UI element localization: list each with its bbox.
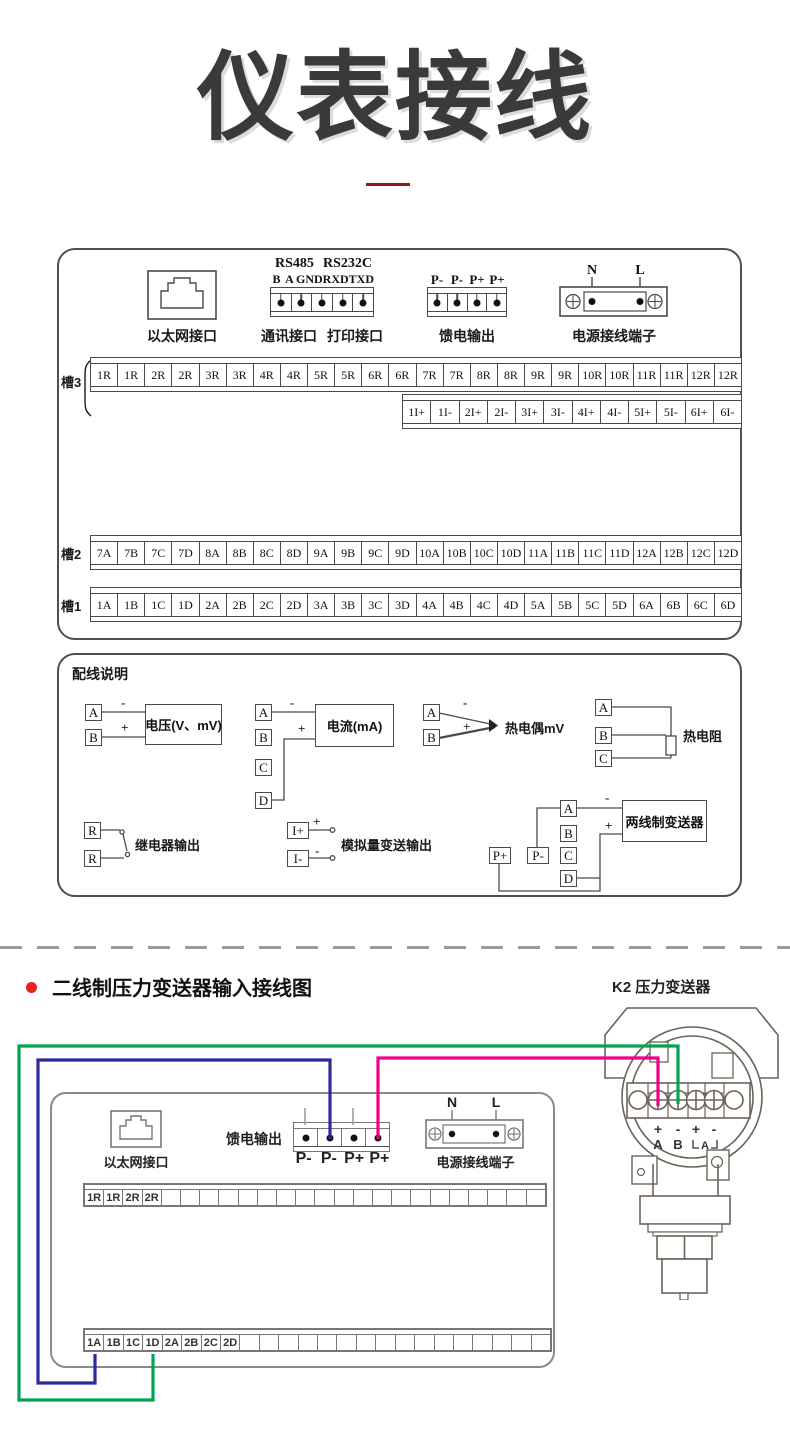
terminal-cell: 4I- xyxy=(601,401,629,423)
power-l-label: L xyxy=(635,263,644,278)
terminal-cell: 8D xyxy=(281,542,308,564)
terminal-dot-cell xyxy=(294,1129,318,1146)
terminal-cell: 9A xyxy=(308,542,335,564)
terminal-cell: 8A xyxy=(200,542,227,564)
terminal-cell: 11B xyxy=(552,542,579,564)
terminal-cell xyxy=(299,1335,318,1350)
terminal-cell xyxy=(431,1190,450,1205)
terminal-cell: 2B xyxy=(227,594,254,616)
pin-label: P- xyxy=(447,272,467,288)
ethernet-label: 以太网接口 xyxy=(142,326,222,346)
feed-pin-labels: P-P-P+P+ xyxy=(427,272,507,288)
terminal-cell: 10A xyxy=(417,542,444,564)
terminal-cell: 2R xyxy=(143,1190,162,1205)
power-terminal-block: N L xyxy=(425,1093,525,1151)
terminal-cell: 7R xyxy=(444,364,471,386)
terminal-c: C xyxy=(595,750,612,767)
terminal-cell: 8B xyxy=(227,542,254,564)
terminal-cell: 2D xyxy=(281,594,308,616)
terminal-a: A xyxy=(85,704,102,721)
terminal-cell: 6R xyxy=(362,364,389,386)
wiring-lines xyxy=(59,655,744,899)
terminal-cell: 11R xyxy=(634,364,661,386)
terminal-dot-cell xyxy=(342,1129,366,1146)
terminal-cell: 7C xyxy=(145,542,172,564)
terminal-cell: 5D xyxy=(606,594,633,616)
terminal-cell xyxy=(239,1190,258,1205)
terminal-cell: 11R xyxy=(661,364,688,386)
minus-sign: - xyxy=(315,843,319,859)
power-n-label: N xyxy=(587,263,597,278)
sign-minus: - xyxy=(712,1121,717,1137)
feed-terminal-strip xyxy=(427,287,507,317)
terminal-cell xyxy=(512,1335,531,1350)
terminal-cell: 6B xyxy=(661,594,688,616)
power-terminal-label: 电源接线端子 xyxy=(428,1152,523,1171)
terminal-cell xyxy=(279,1335,298,1350)
minus-sign: - xyxy=(463,695,467,711)
terminal-cell xyxy=(277,1190,296,1205)
pin-label: RXD xyxy=(323,272,349,287)
terminal-cell: 1B xyxy=(104,1335,123,1350)
terminal-cell: 3D xyxy=(389,594,416,616)
terminal-cell xyxy=(527,1190,545,1205)
terminal-cell xyxy=(318,1335,337,1350)
terminal-cell: 8R xyxy=(498,364,525,386)
terminal-cell xyxy=(415,1335,434,1350)
feed-terminal-strip xyxy=(293,1122,390,1152)
terminal-p-plus: P+ xyxy=(489,847,511,864)
terminal-cell: 6A xyxy=(634,594,661,616)
terminal-cell: 4D xyxy=(498,594,525,616)
pin-label: P- xyxy=(291,1150,316,1168)
terminal-cell: 7D xyxy=(172,542,199,564)
terminal-cell: 1A xyxy=(91,594,118,616)
terminal-cell xyxy=(411,1190,430,1205)
terminal-cell xyxy=(473,1335,492,1350)
pin-label: TXD xyxy=(349,272,374,287)
terminal-cell: 3C xyxy=(362,594,389,616)
terminal-cell: 3I+ xyxy=(516,401,544,423)
main-wiring-panel: 以太网接口 RS485 RS232C BAGNDRXDTXD 通讯接口 打印接口… xyxy=(57,248,742,640)
comm-port-label: 通讯接口 xyxy=(261,326,317,346)
terminal-dot-cell xyxy=(333,294,354,311)
pin-label: P+ xyxy=(487,272,507,288)
plus-sign: + xyxy=(605,818,612,834)
terminal-cell: 5C xyxy=(579,594,606,616)
terminal-c: C xyxy=(560,847,577,864)
minus-sign: - xyxy=(121,695,125,711)
terminal-cell: 2D xyxy=(221,1335,240,1350)
terminal-cell: 1C xyxy=(124,1335,143,1350)
power-terminal-block: N L xyxy=(559,258,669,318)
terminal-cell xyxy=(373,1190,392,1205)
terminal-b: B xyxy=(255,729,272,746)
terminal-a: A xyxy=(595,699,612,716)
terminal-cell: 6I+ xyxy=(686,401,714,423)
terminal-d: D xyxy=(255,792,272,809)
terminal-cell: 6C xyxy=(688,594,715,616)
plus-sign: + xyxy=(298,721,305,737)
comm-dot-cells xyxy=(271,294,373,311)
terminal-cell: 3I- xyxy=(544,401,572,423)
terminal-d: D xyxy=(560,870,577,887)
terminal-b: B xyxy=(595,727,612,744)
minus-sign: - xyxy=(605,790,609,806)
terminal-r1: R xyxy=(84,822,101,839)
terminal-cell: 2B xyxy=(182,1335,201,1350)
terminal-cell: 1R xyxy=(91,364,118,386)
terminal-cell xyxy=(181,1190,200,1205)
terminal-cell: 1I+ xyxy=(403,401,431,423)
pin-label: P- xyxy=(427,272,447,288)
terminal-cell: 12R xyxy=(715,364,741,386)
terminal-cell: 1A xyxy=(85,1335,104,1350)
terminal-cell: 1R xyxy=(118,364,145,386)
terminal-cell: 10R xyxy=(579,364,606,386)
wiring-instructions-panel: 配线说明 A B - + xyxy=(57,653,742,897)
terminal-dot-cell xyxy=(292,294,313,311)
terminal-cell: 4R xyxy=(254,364,281,386)
terminal-i-minus: I- xyxy=(287,850,309,867)
terminal-cell: 1B xyxy=(118,594,145,616)
terminal-cell: 4R xyxy=(281,364,308,386)
terminal-cell: 5I+ xyxy=(629,401,657,423)
terminal-cell: 5A xyxy=(525,594,552,616)
feed-pin-labels: P-P-P+P+ xyxy=(291,1150,392,1168)
terminal-dot-cell xyxy=(468,294,488,311)
comm-pin-labels: BAGNDRXDTXD xyxy=(270,272,374,287)
page: 仪表接线 以太网接口 RS485 RS232C BAGNDRXDTXD 通讯接口 xyxy=(0,0,790,1435)
pin-label: P+ xyxy=(467,272,487,288)
terminal-cell: 7R xyxy=(417,364,444,386)
recorder-terminal-strip-row1: 1R1R2R2R xyxy=(83,1183,547,1207)
rs232c-label: RS232C xyxy=(323,256,372,272)
terminal-cell: 2I+ xyxy=(460,401,488,423)
terminal-cell: 1R xyxy=(104,1190,123,1205)
terminal-cell: 10R xyxy=(606,364,633,386)
terminal-cell: 12R xyxy=(688,364,715,386)
terminal-i-plus: I+ xyxy=(287,822,309,839)
plus-sign: + xyxy=(463,719,470,735)
terminal-cell xyxy=(376,1335,395,1350)
terminal-c: C xyxy=(255,759,272,776)
terminal-dot-cell xyxy=(271,294,292,311)
terminal-cell: 9R xyxy=(552,364,579,386)
strip-band xyxy=(403,423,741,428)
plus-sign: + xyxy=(121,720,128,736)
sign-plus: + xyxy=(654,1121,662,1137)
terminal-cell: 3A xyxy=(308,594,335,616)
power-terminal-label: 电源接线端子 xyxy=(564,326,664,346)
terminal-cell: 12D xyxy=(715,542,741,564)
terminal-cell xyxy=(315,1190,334,1205)
terminal-dot-cell xyxy=(318,1129,342,1146)
slot3-terminal-strip-row1: 1R1R2R2R3R3R4R4R5R5R6R6R7R7R8R8R9R9R10R1… xyxy=(90,357,742,392)
terminal-dot-cell xyxy=(428,294,448,311)
bullet-icon xyxy=(26,982,37,993)
terminal-dot-cell xyxy=(487,294,506,311)
terminal-cell: 6R xyxy=(389,364,416,386)
terminal-cell xyxy=(337,1335,356,1350)
terminal-cell: 2R xyxy=(145,364,172,386)
terminal-cell: 1D xyxy=(172,594,199,616)
terminal-cell xyxy=(240,1335,259,1350)
terminal-cell: 3B xyxy=(335,594,362,616)
terminal-a: A xyxy=(255,704,272,721)
strip-band xyxy=(91,386,741,391)
terminal-a: A xyxy=(423,704,440,721)
voltage-box: 电压(V、mV) xyxy=(145,704,222,745)
feed-output-label: 馈电输出 xyxy=(427,326,507,346)
terminal-cell: 12A xyxy=(634,542,661,564)
slot3-label: 槽3 xyxy=(61,372,81,391)
pin-label: P+ xyxy=(342,1150,367,1168)
terminal-a-label: A xyxy=(653,1137,663,1152)
power-n-label: N xyxy=(447,1094,457,1110)
terminal-cell: 2C xyxy=(254,594,281,616)
slot3-terminal-strip-row2: 1I+1I-2I+2I-3I+3I-4I+4I-5I+5I-6I+6I- xyxy=(402,394,742,429)
pin-label: A xyxy=(283,272,296,287)
terminal-cell xyxy=(200,1190,219,1205)
section-divider xyxy=(0,946,790,949)
terminal-cell: 1D xyxy=(143,1335,162,1350)
terminal-cell: 2I- xyxy=(488,401,516,423)
terminal-cell: 11A xyxy=(525,542,552,564)
terminal-cell xyxy=(450,1190,469,1205)
terminal-cell: 1R xyxy=(85,1190,104,1205)
page-title: 仪表接线 xyxy=(0,18,790,159)
terminal-cell xyxy=(532,1335,550,1350)
ethernet-port-icon xyxy=(147,270,217,320)
slot1-terminal-strip: 1A1B1C1D2A2B2C2D3A3B3C3D4A4B4C4D5A5B5C5D… xyxy=(90,587,742,622)
rs485-label: RS485 xyxy=(275,256,314,272)
terminal-cell xyxy=(335,1190,354,1205)
terminal-cell xyxy=(260,1335,279,1350)
slot2-label: 槽2 xyxy=(61,544,81,563)
ethernet-label: 以太网接口 xyxy=(96,1152,176,1171)
terminal-cell: 1C xyxy=(145,594,172,616)
terminal-cell: 3R xyxy=(200,364,227,386)
terminal-cell xyxy=(507,1190,526,1205)
terminal-cell: 9R xyxy=(525,364,552,386)
terminal-cell xyxy=(435,1335,454,1350)
pin-label: P- xyxy=(316,1150,341,1168)
pin-label: B xyxy=(270,272,283,287)
slot2-terminal-strip: 7A7B7C7D8A8B8C8D9A9B9C9D10A10B10C10D11A1… xyxy=(90,535,742,570)
two-wire-transmitter-box: 两线制变送器 xyxy=(622,800,707,842)
terminal-dot-cell xyxy=(448,294,468,311)
terminal-cell xyxy=(488,1190,507,1205)
ethernet-port-icon xyxy=(110,1110,162,1148)
power-l-label: L xyxy=(492,1094,501,1110)
terminal-cell: 5R xyxy=(335,364,362,386)
terminal-cell xyxy=(258,1190,277,1205)
strip-band xyxy=(271,311,373,316)
terminal-cell xyxy=(162,1190,181,1205)
slot1-label: 槽1 xyxy=(61,596,81,615)
terminal-cell xyxy=(219,1190,238,1205)
terminal-b-label: B xyxy=(673,1137,682,1152)
comm-terminal-strip xyxy=(270,287,374,317)
terminal-cell: 2A xyxy=(200,594,227,616)
terminal-cell: 3R xyxy=(227,364,254,386)
strip-band xyxy=(428,311,506,316)
terminal-cell xyxy=(469,1190,488,1205)
terminal-cell xyxy=(392,1190,411,1205)
terminal-cell xyxy=(493,1335,512,1350)
terminal-cell: 4A xyxy=(417,594,444,616)
sign-minus: - xyxy=(676,1121,681,1137)
terminal-cell: 10D xyxy=(498,542,525,564)
terminal-cell xyxy=(396,1335,415,1350)
terminal-cell: 10C xyxy=(471,542,498,564)
terminal-dot-cell xyxy=(312,294,333,311)
terminal-cell: 2R xyxy=(172,364,199,386)
terminal-cell: 4I+ xyxy=(573,401,601,423)
terminal-cell: 10B xyxy=(444,542,471,564)
terminal-cell: 2A xyxy=(163,1335,182,1350)
terminal-cell xyxy=(357,1335,376,1350)
terminal-cell: 11C xyxy=(579,542,606,564)
sign-plus: + xyxy=(692,1121,700,1137)
terminal-cell: 9D xyxy=(389,542,416,564)
feed-dot-cells xyxy=(428,294,506,311)
terminal-cell: 1I- xyxy=(431,401,459,423)
terminal-b: B xyxy=(423,729,440,746)
terminal-b: B xyxy=(85,729,102,746)
terminal-cell: 11D xyxy=(606,542,633,564)
terminal-cell: 8C xyxy=(254,542,281,564)
terminal-cell: 9B xyxy=(335,542,362,564)
terminal-cell: 4C xyxy=(471,594,498,616)
terminal-cell xyxy=(354,1190,373,1205)
terminal-cell: 7B xyxy=(118,542,145,564)
pin-label: P+ xyxy=(367,1150,392,1168)
terminal-a: A xyxy=(560,800,577,817)
section-title: 二线制压力变送器输入接线图 xyxy=(52,972,312,1001)
feed-dot-cells xyxy=(294,1129,389,1146)
terminal-cell: 12C xyxy=(688,542,715,564)
pressure-transmitter-drawing: + - + - A B A xyxy=(595,1000,790,1300)
terminal-cell: 2C xyxy=(202,1335,221,1350)
strip-band xyxy=(91,616,741,621)
terminal-cell: 7A xyxy=(91,542,118,564)
terminal-p-minus: P- xyxy=(527,847,549,864)
recorder-terminal-strip-row2: 1A1B1C1D2A2B2C2D xyxy=(83,1328,552,1352)
terminal-dot-cell xyxy=(353,294,373,311)
pin-label: GND xyxy=(296,272,323,287)
terminal-cell: 5I- xyxy=(657,401,685,423)
terminal-cell: 5B xyxy=(552,594,579,616)
title-underline xyxy=(366,183,410,186)
current-box: 电流(mA) xyxy=(315,704,394,747)
strip-band xyxy=(91,564,741,569)
feed-output-label: 馈电输出 xyxy=(226,1129,282,1149)
k2-transmitter-label: K2 压力变送器 xyxy=(612,976,710,997)
terminal-cell: 5R xyxy=(308,364,335,386)
plus-sign: + xyxy=(313,814,320,830)
terminal-cell xyxy=(296,1190,315,1205)
comm-port-labels: 通讯接口 打印接口 xyxy=(255,326,389,346)
terminal-cell: 2R xyxy=(123,1190,142,1205)
terminal-b: B xyxy=(560,825,577,842)
terminal-cell: 6I- xyxy=(714,401,741,423)
terminal-cell: 6D xyxy=(715,594,741,616)
terminal-dot-cell xyxy=(366,1129,389,1146)
terminal-r2: R xyxy=(84,850,101,867)
terminal-cell xyxy=(454,1335,473,1350)
minus-sign: - xyxy=(290,695,294,711)
printer-port-label: 打印接口 xyxy=(327,326,383,346)
terminal-cell: 12B xyxy=(661,542,688,564)
terminal-cell: 4B xyxy=(444,594,471,616)
terminal-cell: 8R xyxy=(471,364,498,386)
terminal-cell: 9C xyxy=(362,542,389,564)
